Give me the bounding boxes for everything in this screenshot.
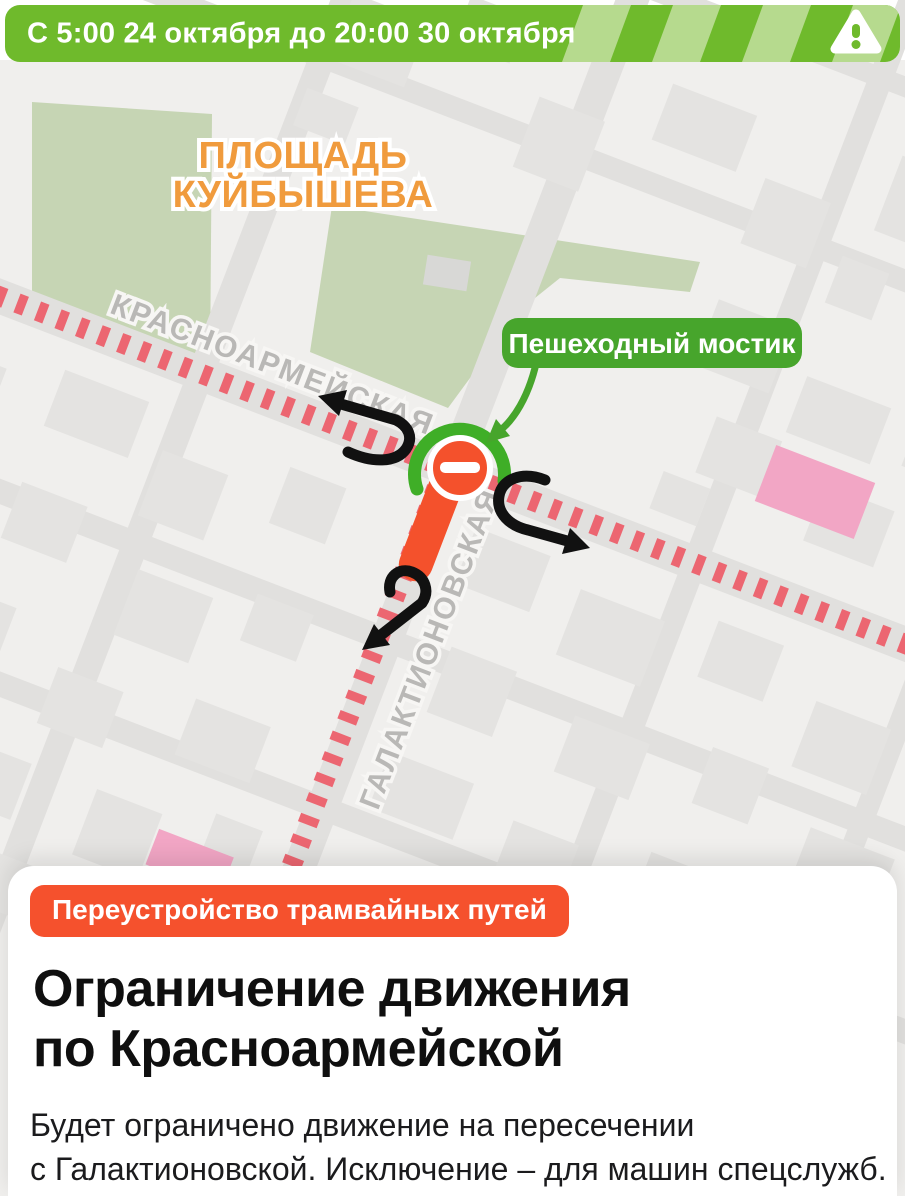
- schedule-banner: С 5:00 24 октября до 20:00 30 октября: [5, 5, 900, 62]
- card-title: Ограничение движенияпо Красноармейской: [33, 959, 897, 1079]
- card-title-line1: Ограничение движения: [33, 960, 631, 1018]
- card-body-line2: с Галактионовской. Исключение – для маши…: [30, 1151, 887, 1187]
- square-label-line1: ПЛОЩАДЬ: [199, 135, 408, 177]
- card-title-line2: по Красноармейской: [33, 1020, 563, 1078]
- square-label: ПЛОЩАДЬ КУЙБЫШЕВА: [173, 135, 434, 216]
- card-body: Будет ограничено движение на пересечении…: [30, 1103, 897, 1191]
- no-entry-icon: [430, 438, 490, 498]
- info-card: Переустройство трамвайных путей Ограниче…: [8, 866, 897, 1196]
- schedule-text: С 5:00 24 октября до 20:00 30 октября: [27, 17, 576, 50]
- card-body-line1: Будет ограничено движение на пересечении: [30, 1107, 694, 1143]
- square-label-line2: КУЙБЫШЕВА: [173, 171, 434, 216]
- callout-label: Пешеходный мостик: [508, 328, 796, 359]
- infographic: КРАСНОАРМЕЙСКАЯ ГАЛАКТИОНОВСКАЯ П: [0, 0, 905, 1196]
- works-badge: Переустройство трамвайных путей: [30, 885, 569, 937]
